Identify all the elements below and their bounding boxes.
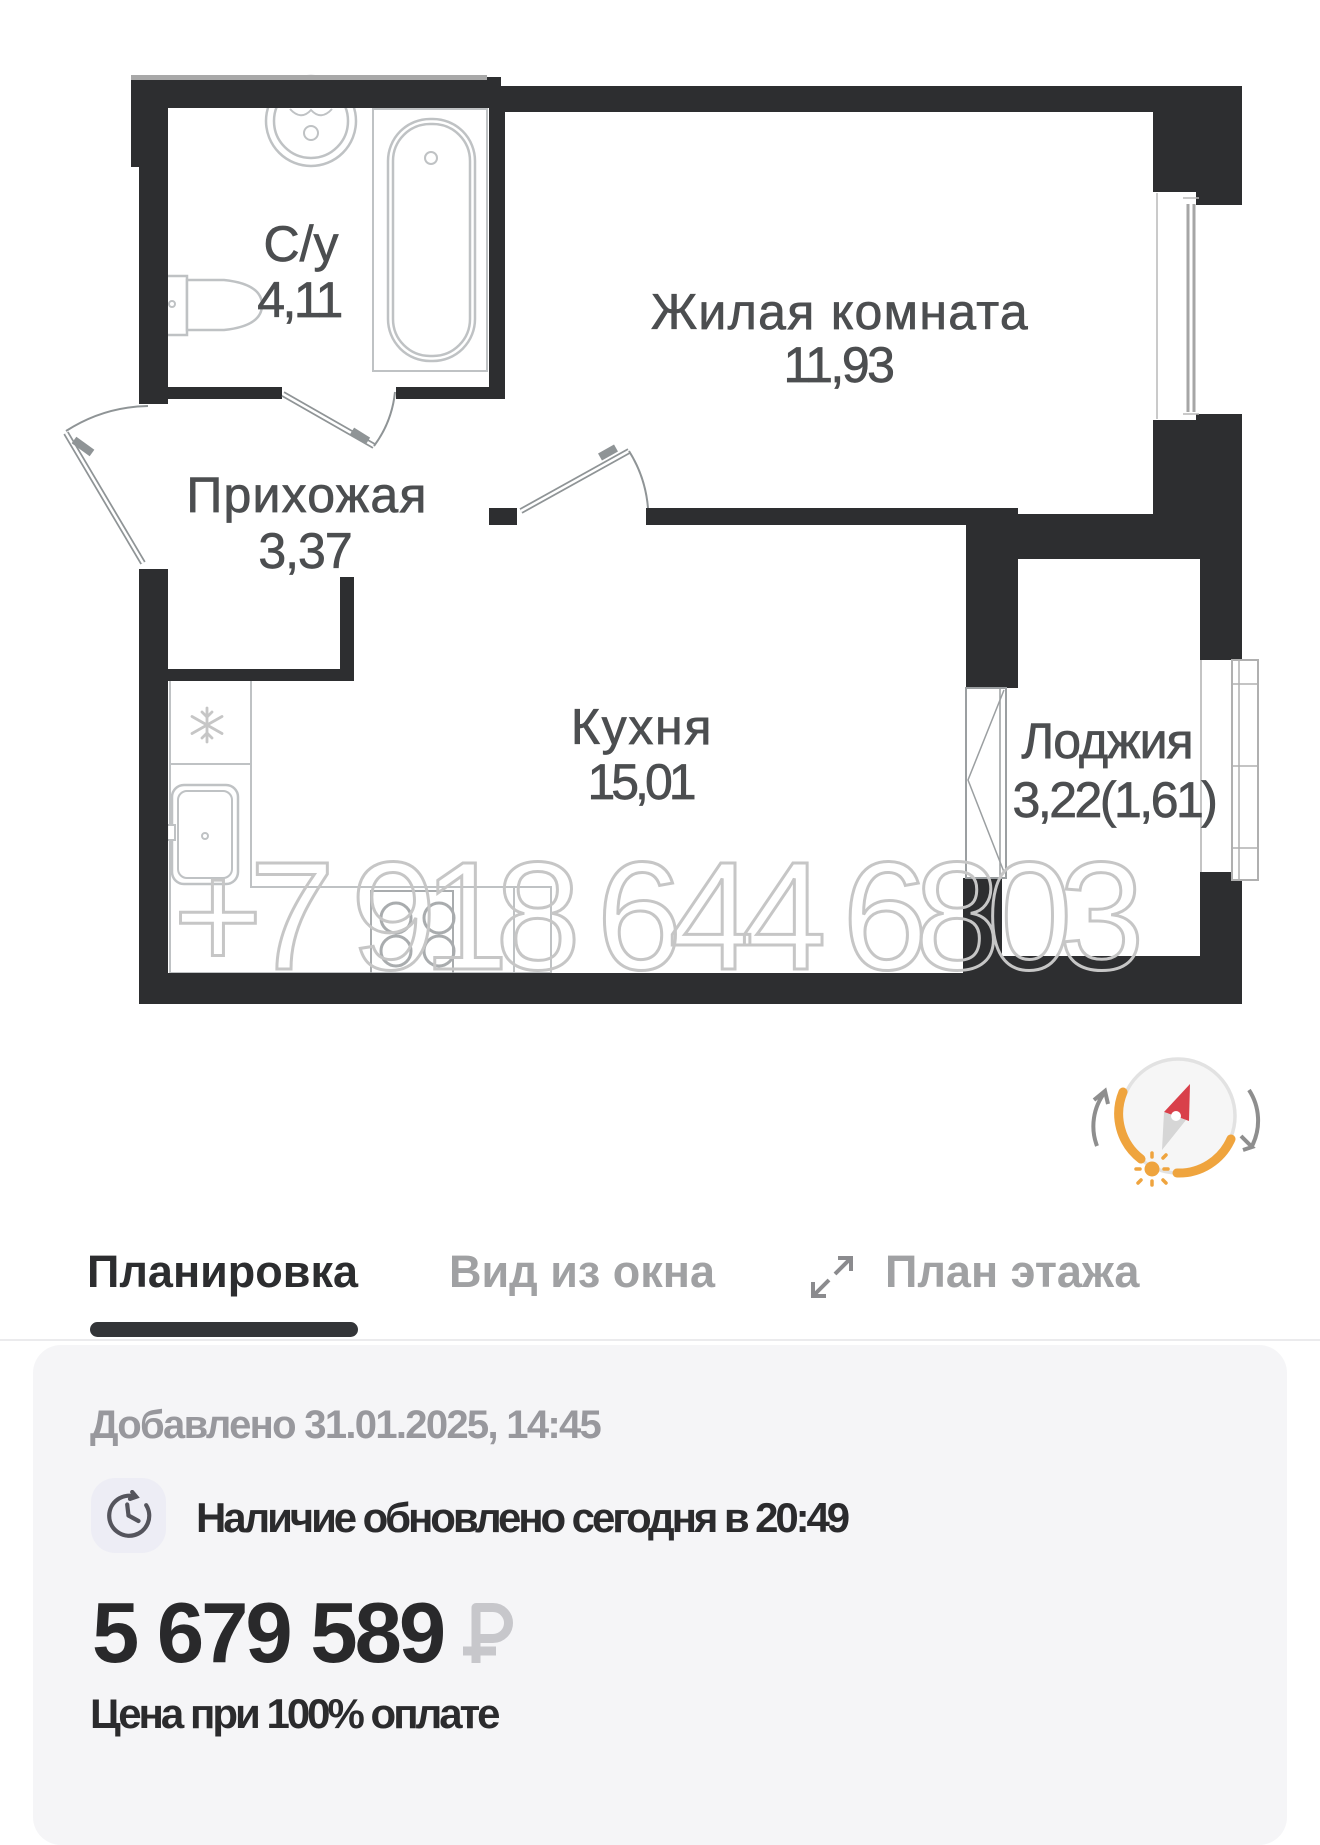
svg-text:15,01: 15,01 — [587, 754, 694, 810]
svg-text:Лоджия: Лоджия — [1021, 713, 1192, 769]
svg-text:3,37: 3,37 — [258, 523, 351, 579]
svg-text:+7 918 644 6803: +7 918 644 6803 — [173, 830, 1138, 1002]
svg-text:3,22(1,61): 3,22(1,61) — [1013, 772, 1216, 828]
svg-text:С/у: С/у — [264, 216, 339, 272]
svg-text:4,11: 4,11 — [257, 272, 341, 328]
svg-text:11,93: 11,93 — [784, 337, 894, 393]
svg-text:Кухня: Кухня — [571, 699, 713, 755]
svg-text:Прихожая: Прихожая — [186, 467, 427, 523]
svg-text:Жилая комната: Жилая комната — [651, 284, 1029, 340]
